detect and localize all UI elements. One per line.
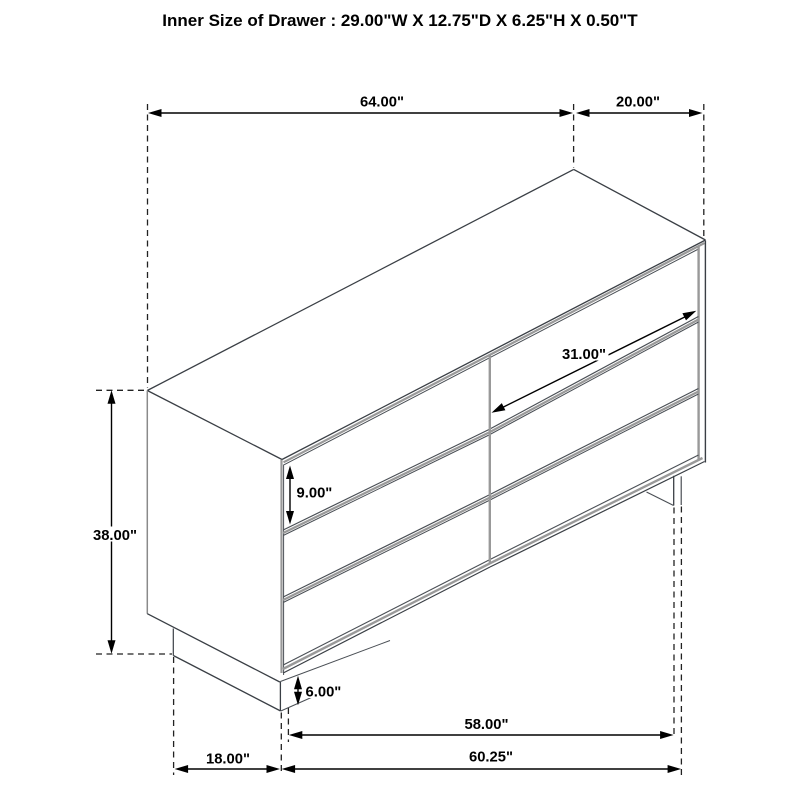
svg-text:60.25": 60.25": [469, 750, 513, 766]
svg-text:38.00": 38.00": [93, 528, 137, 544]
svg-text:Inner Size of Drawer : 29.00"W: Inner Size of Drawer : 29.00"W X 12.75"D…: [162, 11, 638, 30]
svg-text:18.00": 18.00": [206, 752, 250, 768]
svg-text:6.00": 6.00": [306, 685, 342, 701]
svg-text:58.00": 58.00": [464, 717, 508, 733]
svg-text:9.00": 9.00": [297, 486, 333, 502]
svg-text:20.00": 20.00": [616, 95, 660, 111]
svg-text:31.00": 31.00": [562, 347, 606, 363]
svg-text:64.00": 64.00": [360, 95, 404, 111]
